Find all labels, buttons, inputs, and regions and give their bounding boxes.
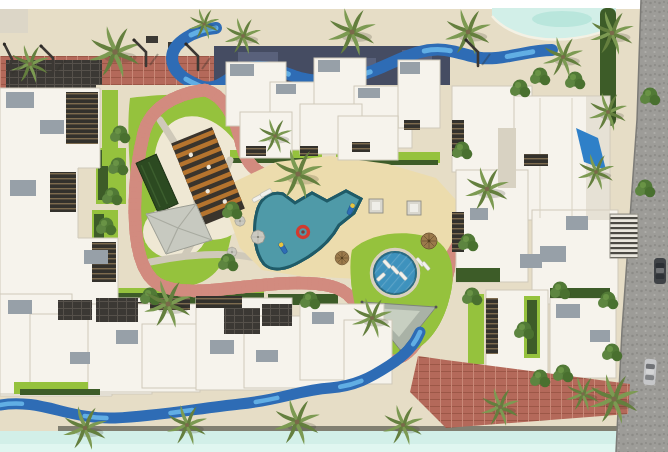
- solar-panels: [96, 298, 138, 322]
- louvre-roof: [610, 214, 638, 258]
- solar-panels: [58, 300, 92, 320]
- masterplan-render: [0, 0, 668, 452]
- tiki-umbrella: [421, 233, 437, 249]
- balcony-slats: [50, 172, 76, 212]
- building-cluster-north: [226, 58, 440, 160]
- pool-ring-float: [298, 227, 309, 238]
- tiki-umbrella: [335, 251, 349, 265]
- parked-car: [643, 359, 657, 386]
- solar-panels: [262, 304, 292, 326]
- solar-panels: [224, 308, 260, 334]
- building-cluster-south: [0, 294, 392, 395]
- balcony-slats: [66, 92, 98, 144]
- bench: [146, 36, 158, 43]
- parked-car: [654, 258, 666, 284]
- cabana: [369, 199, 383, 213]
- pool-umbrella: [251, 230, 265, 244]
- site-plan-svg: [0, 0, 668, 452]
- corner-sidewalk: [0, 9, 28, 33]
- cabana: [407, 201, 421, 215]
- top-white-margin: [0, 0, 668, 9]
